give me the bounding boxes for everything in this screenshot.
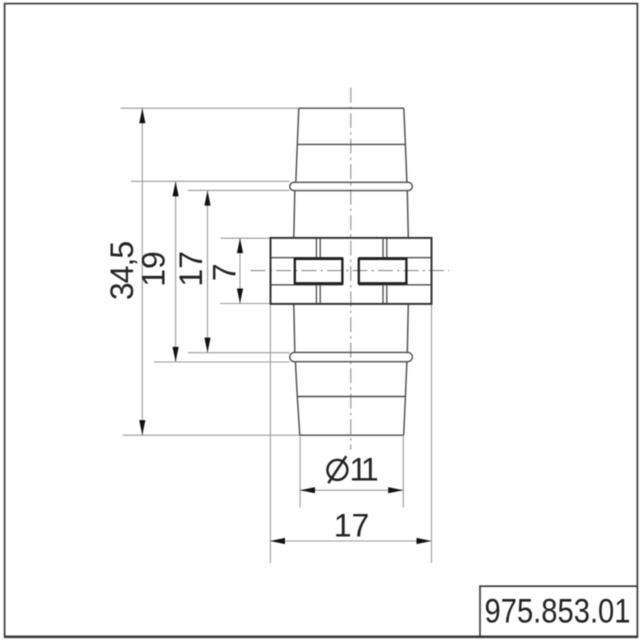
svg-text:19: 19 [136, 251, 172, 287]
svg-text:11: 11 [350, 451, 378, 487]
svg-text:17: 17 [173, 251, 209, 287]
svg-text:17: 17 [334, 507, 370, 543]
svg-text:34,5: 34,5 [104, 242, 140, 300]
svg-text:7: 7 [207, 263, 243, 281]
svg-text:975.853.01: 975.853.01 [485, 593, 631, 631]
